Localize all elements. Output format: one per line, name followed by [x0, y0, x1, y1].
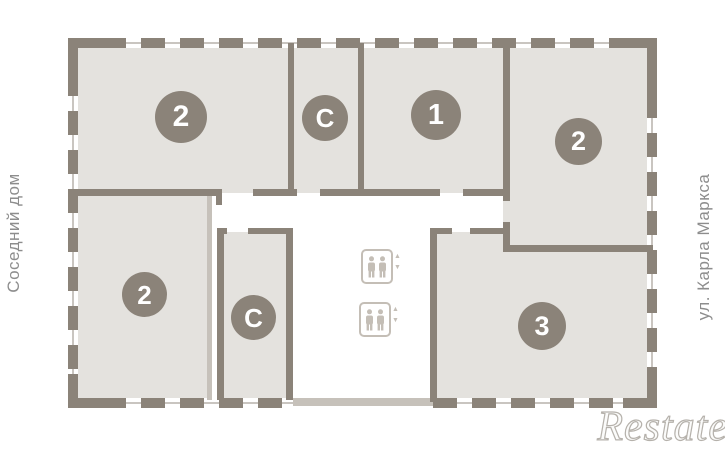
arrow-down-icon: ▼: [394, 264, 401, 271]
wall-divider-2-studio: [288, 43, 294, 196]
floorplan: 2 С 1 2 2 С 3 ▲ ▼ ▲ ▼: [0, 0, 725, 444]
wall-studio-bottom-right: [286, 228, 293, 400]
wall-apartment-3-left: [430, 228, 437, 402]
wall-stub: [216, 189, 222, 205]
room-badge[interactable]: С: [302, 95, 348, 141]
corner-bottom-left: [68, 374, 78, 408]
outer-wall-bottom-right: [433, 398, 623, 408]
outer-wall-right: [647, 94, 657, 368]
elevator-icon: [359, 302, 391, 337]
label-neighbor-house: Соседний дом: [4, 173, 24, 292]
person-icon: [376, 309, 385, 331]
person-icon: [367, 256, 376, 278]
elevator-icon: [361, 249, 393, 284]
room-badge[interactable]: 3: [518, 302, 566, 350]
corner-top-left: [68, 38, 78, 72]
room-badge[interactable]: С: [231, 295, 276, 340]
arrow-up-icon: ▲: [392, 306, 399, 313]
wall-divider-studio-1: [358, 43, 364, 196]
label-street-karla-marksa: ул. Карла Маркса: [694, 174, 714, 321]
wall-corridor-top: [253, 189, 297, 196]
room-badge[interactable]: 2: [555, 118, 602, 165]
wall-studio-bottom-top: [217, 228, 227, 234]
corner-bottom-right: [647, 368, 657, 408]
wall-divider-1-2: [503, 43, 510, 201]
arrow-up-icon: ▲: [394, 253, 401, 260]
arrow-down-icon: ▼: [392, 317, 399, 324]
wall-apartment-2-right-bottom: [503, 245, 653, 252]
corner-top-right: [647, 38, 657, 94]
person-icon: [378, 256, 387, 278]
person-icon: [365, 309, 374, 331]
room-badge[interactable]: 2: [122, 272, 167, 317]
room-badge[interactable]: 1: [411, 90, 461, 140]
wall-apartment-3-top: [430, 228, 452, 234]
wall-apartment-3-top: [470, 228, 510, 234]
wall-partition-bottom-left: [207, 196, 212, 400]
wall-corridor-bottom: [293, 398, 433, 406]
wall-corridor-top: [463, 189, 510, 196]
elevator-direction-arrows: ▲ ▼: [394, 253, 401, 271]
wall-corridor-top: [320, 189, 440, 196]
room-badge[interactable]: 2: [155, 91, 207, 143]
wall-studio-bottom-left: [217, 228, 224, 400]
elevator-direction-arrows: ▲ ▼: [392, 306, 399, 324]
wall-corridor-top: [73, 189, 222, 196]
wall-studio-bottom-top: [248, 228, 293, 234]
outer-wall-left: [68, 72, 78, 374]
outer-wall-bottom-left: [102, 398, 293, 408]
